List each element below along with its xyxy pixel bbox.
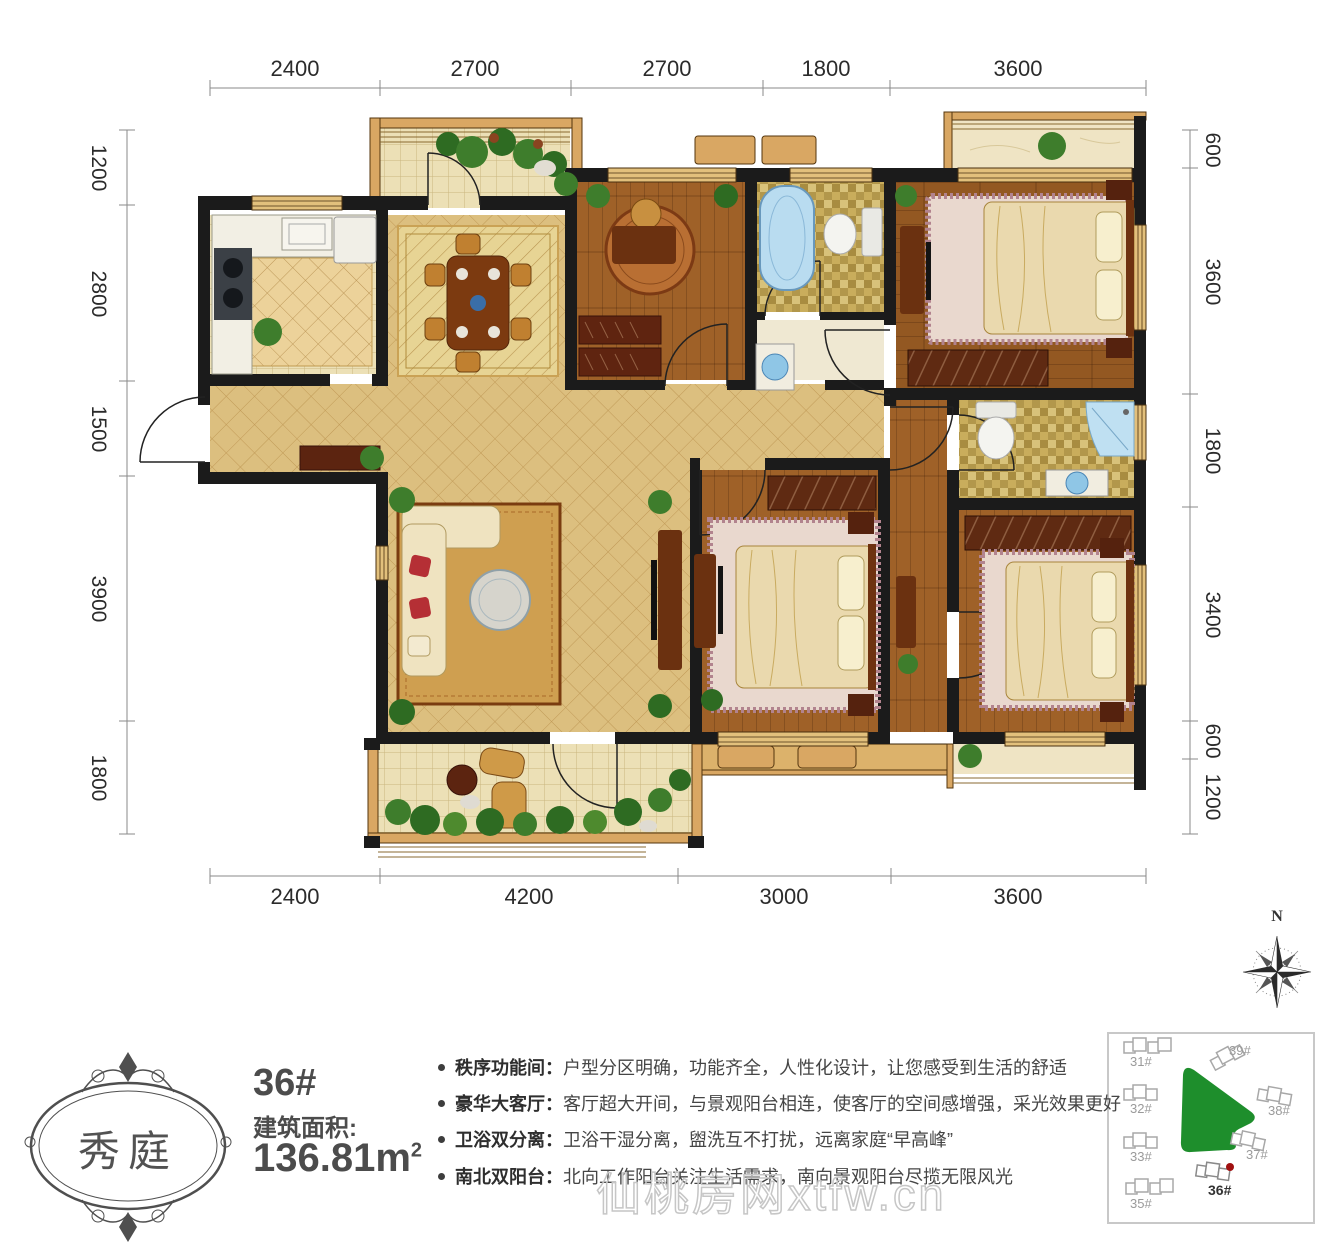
plant-symbol <box>895 185 917 207</box>
bullet-icon <box>438 1173 445 1180</box>
project-logo: 秀庭 <box>38 1118 218 1179</box>
dim-left-3: 1500 <box>86 401 110 457</box>
tv-cabinet <box>900 226 924 314</box>
compass-rose <box>1243 936 1311 1008</box>
area-number: 136.81m <box>253 1136 411 1180</box>
study-chair <box>631 199 661 229</box>
study-desk <box>612 226 676 264</box>
pillow <box>838 556 864 610</box>
pillow <box>1092 628 1116 678</box>
se-balcony <box>958 744 982 768</box>
tv <box>718 566 723 634</box>
dim-top-3: 2700 <box>617 56 717 82</box>
wardrobe <box>768 476 876 510</box>
plant-symbol <box>958 744 982 768</box>
dim-right-2: 3600 <box>1200 254 1224 310</box>
sitemap-label-33: 33# <box>1130 1149 1152 1164</box>
bullet-icon <box>438 1100 445 1107</box>
dim-right-3: 1800 <box>1200 423 1224 479</box>
floorplan-page: 2400 2700 2700 1800 3600 2400 4200 3000 … <box>0 0 1339 1252</box>
entry <box>300 446 384 470</box>
feature-item: 秩序功能间：户型分区明确，功能齐全，人性化设计，让您感受到生活的舒适 <box>438 1054 1148 1080</box>
dim-right-4: 3400 <box>1200 587 1224 643</box>
plant-symbol <box>586 184 610 208</box>
kitchen-mat <box>250 258 372 366</box>
feature-label: 豪华大客厅： <box>455 1094 563 1114</box>
dim-bottom-2: 4200 <box>479 884 579 910</box>
dim-left-4: 3900 <box>86 571 110 627</box>
sitemap-label-36: 36# <box>1208 1182 1231 1198</box>
feature-item: 豪华大客厅：客厅超大开间，与景观阳台相连，使客厅的空间感增强，采光效果更好 <box>438 1090 1148 1116</box>
feature-text: 客厅超大开间，与景观阳台相连，使客厅的空间感增强，采光效果更好 <box>563 1094 1121 1114</box>
dining-area <box>398 226 558 376</box>
bullet-icon <box>438 1136 445 1143</box>
sitemap-label-31: 31# <box>1130 1054 1152 1069</box>
plant-symbol <box>648 694 672 718</box>
plant-symbol <box>648 490 672 514</box>
dim-right-5: 600 <box>1200 713 1224 769</box>
plant-symbol <box>360 446 384 470</box>
study-bench <box>579 316 661 344</box>
feature-label: 南北双阳台： <box>455 1167 563 1187</box>
dim-top-5: 3600 <box>968 56 1068 82</box>
unit-number: 36# <box>253 1062 316 1105</box>
dim-left-2: 2800 <box>86 266 110 322</box>
dim-top-4: 1800 <box>776 56 876 82</box>
bullet-icon <box>438 1064 445 1071</box>
kitchen-fridge <box>334 217 376 263</box>
pillow-red <box>408 554 432 578</box>
area-superscript: 2 <box>411 1140 422 1162</box>
dim-top-1: 2400 <box>245 56 345 82</box>
feature-item: 南北双阳台：北向工作阳台关注生活需求，南向景观阳台尽揽无限风光 <box>438 1163 1148 1189</box>
hall-floor <box>388 384 884 470</box>
tv <box>926 242 931 300</box>
plant-symbol <box>389 699 415 725</box>
pillow <box>838 616 864 670</box>
pillow <box>1096 270 1122 320</box>
plant-symbol <box>389 487 415 513</box>
feature-item: 卫浴双分离：卫浴干湿分离，盥洗互不打扰，远离家庭“早高峰” <box>438 1126 1148 1152</box>
feature-label: 卫浴双分离： <box>455 1130 563 1150</box>
toilet <box>978 417 1014 459</box>
sitemap-label-37: 37# <box>1246 1147 1268 1162</box>
plant-symbol <box>714 184 738 208</box>
pillow <box>1092 572 1116 622</box>
nightstand <box>1100 702 1124 722</box>
nightstand <box>1100 538 1124 558</box>
dim-bottom-3: 3000 <box>734 884 834 910</box>
nightstand <box>848 694 874 716</box>
sitemap-label-38: 38# <box>1268 1103 1290 1118</box>
dim-left-1: 1200 <box>86 140 110 196</box>
area-value: 136.81m2 <box>253 1136 422 1181</box>
location-marker <box>1226 1163 1234 1171</box>
dim-top-2: 2700 <box>425 56 525 82</box>
feature-text: 卫浴干湿分离，盥洗互不打扰，远离家庭“早高峰” <box>563 1130 953 1150</box>
north-label: N <box>1262 908 1292 926</box>
tv <box>651 560 657 640</box>
dim-left-5: 1800 <box>86 750 110 806</box>
sitemap-label-32: 32# <box>1130 1101 1152 1116</box>
tv-cabinet <box>694 554 716 648</box>
feature-text: 北向工作阳台关注生活需求，南向景观阳台尽揽无限风光 <box>563 1167 1013 1187</box>
pillow <box>1096 212 1122 262</box>
feature-label: 秩序功能间： <box>455 1058 563 1078</box>
nightstand <box>1106 180 1132 200</box>
tv-cabinet <box>658 530 682 670</box>
wardrobe <box>908 350 1048 386</box>
dim-bottom-4: 3600 <box>968 884 1068 910</box>
plant-symbol <box>898 654 918 674</box>
plant-symbol <box>701 689 723 711</box>
plant-symbol <box>254 318 282 346</box>
nightstand <box>1106 338 1132 358</box>
dim-bottom-1: 2400 <box>245 884 345 910</box>
bathtub <box>760 186 814 290</box>
dim-right-6: 1200 <box>1200 769 1224 825</box>
pillow-red <box>408 596 431 619</box>
toilet <box>824 214 856 254</box>
hall-cabinet <box>896 576 916 648</box>
corridor-floor <box>890 400 947 732</box>
sitemap-label-39: 39# <box>1229 1043 1251 1058</box>
feature-text: 户型分区明确，功能齐全，人性化设计，让您感受到生活的舒适 <box>563 1058 1067 1078</box>
balcony-table <box>447 765 477 795</box>
nightstand <box>848 512 874 534</box>
sitemap-label-35: 35# <box>1130 1196 1152 1211</box>
dim-right-1: 600 <box>1200 122 1224 178</box>
